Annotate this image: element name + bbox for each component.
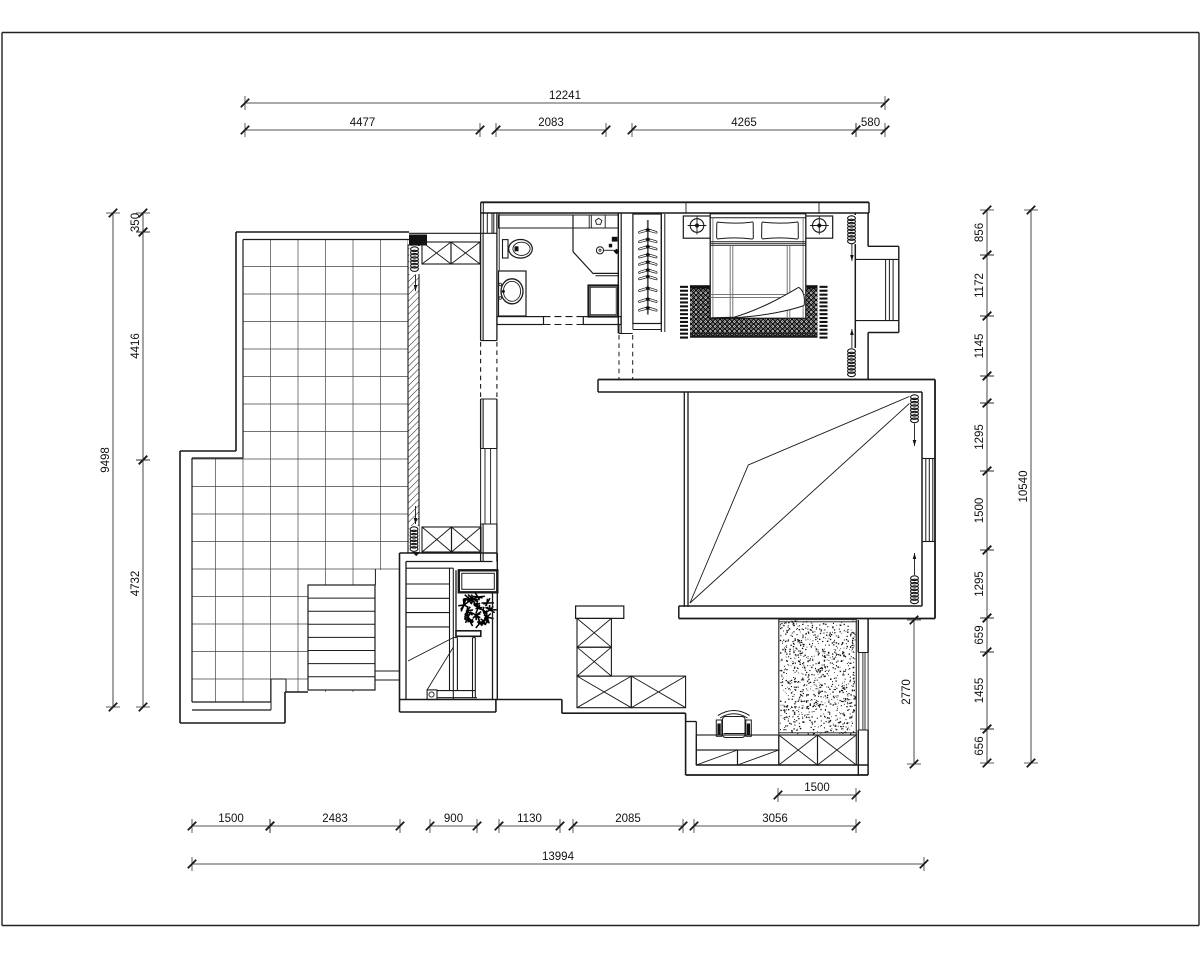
svg-text:656: 656 bbox=[974, 736, 986, 755]
svg-text:2085: 2085 bbox=[615, 813, 641, 825]
svg-text:900: 900 bbox=[444, 813, 463, 825]
svg-text:10540: 10540 bbox=[1018, 471, 1030, 503]
svg-text:1130: 1130 bbox=[517, 813, 542, 825]
svg-text:2770: 2770 bbox=[901, 679, 913, 705]
svg-text:350: 350 bbox=[130, 213, 142, 232]
svg-text:9498: 9498 bbox=[100, 447, 112, 473]
svg-text:1500: 1500 bbox=[218, 813, 244, 825]
svg-text:856: 856 bbox=[974, 223, 986, 242]
svg-text:4265: 4265 bbox=[731, 117, 757, 129]
svg-text:4732: 4732 bbox=[130, 571, 142, 597]
svg-text:1295: 1295 bbox=[974, 424, 986, 450]
svg-text:13994: 13994 bbox=[542, 851, 575, 863]
svg-text:1500: 1500 bbox=[804, 782, 830, 794]
svg-text:580: 580 bbox=[861, 117, 880, 129]
svg-text:1172: 1172 bbox=[974, 273, 986, 298]
svg-text:3056: 3056 bbox=[762, 813, 788, 825]
svg-text:1500: 1500 bbox=[974, 498, 986, 524]
svg-text:12241: 12241 bbox=[549, 90, 581, 102]
svg-text:1295: 1295 bbox=[974, 571, 986, 597]
svg-text:2483: 2483 bbox=[322, 813, 348, 825]
svg-text:2083: 2083 bbox=[538, 117, 564, 129]
svg-text:1455: 1455 bbox=[974, 678, 986, 704]
svg-text:4477: 4477 bbox=[350, 117, 376, 129]
svg-text:1145: 1145 bbox=[974, 334, 986, 359]
svg-text:659: 659 bbox=[974, 625, 986, 644]
svg-text:4416: 4416 bbox=[130, 333, 142, 359]
